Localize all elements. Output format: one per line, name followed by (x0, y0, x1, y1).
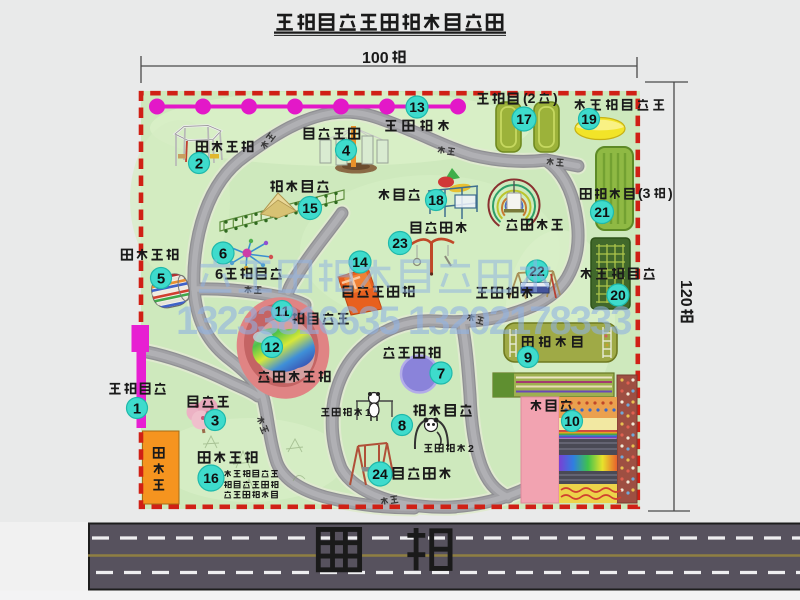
svg-text:15: 15 (302, 200, 318, 216)
svg-text:4: 4 (342, 142, 351, 159)
svg-text:23: 23 (392, 235, 408, 251)
svg-text:(3: (3 (638, 185, 651, 201)
svg-text:9: 9 (524, 349, 532, 366)
svg-text:6: 6 (219, 245, 227, 262)
svg-text:1: 1 (365, 407, 371, 419)
svg-text:2: 2 (195, 155, 203, 172)
svg-text:13: 13 (409, 99, 425, 115)
svg-text:21: 21 (594, 204, 610, 220)
svg-text:5: 5 (157, 270, 165, 287)
svg-text:120: 120 (677, 280, 694, 307)
svg-text:13233816635 13202178333: 13233816635 13202178333 (176, 299, 631, 343)
svg-text:2: 2 (468, 443, 474, 455)
svg-text:8: 8 (398, 417, 406, 434)
svg-text:10: 10 (564, 413, 580, 429)
svg-text:3: 3 (211, 412, 219, 429)
svg-text:100: 100 (362, 50, 389, 67)
svg-text:18: 18 (428, 192, 444, 208)
svg-text:16: 16 (203, 470, 219, 486)
svg-text:1: 1 (133, 400, 141, 417)
svg-text:24: 24 (372, 466, 388, 482)
svg-text:): ) (553, 90, 558, 106)
svg-text:(2: (2 (523, 90, 536, 106)
svg-text:19: 19 (581, 111, 597, 127)
svg-text:): ) (668, 185, 673, 201)
svg-text:17: 17 (516, 111, 532, 127)
svg-text:7: 7 (437, 365, 445, 382)
